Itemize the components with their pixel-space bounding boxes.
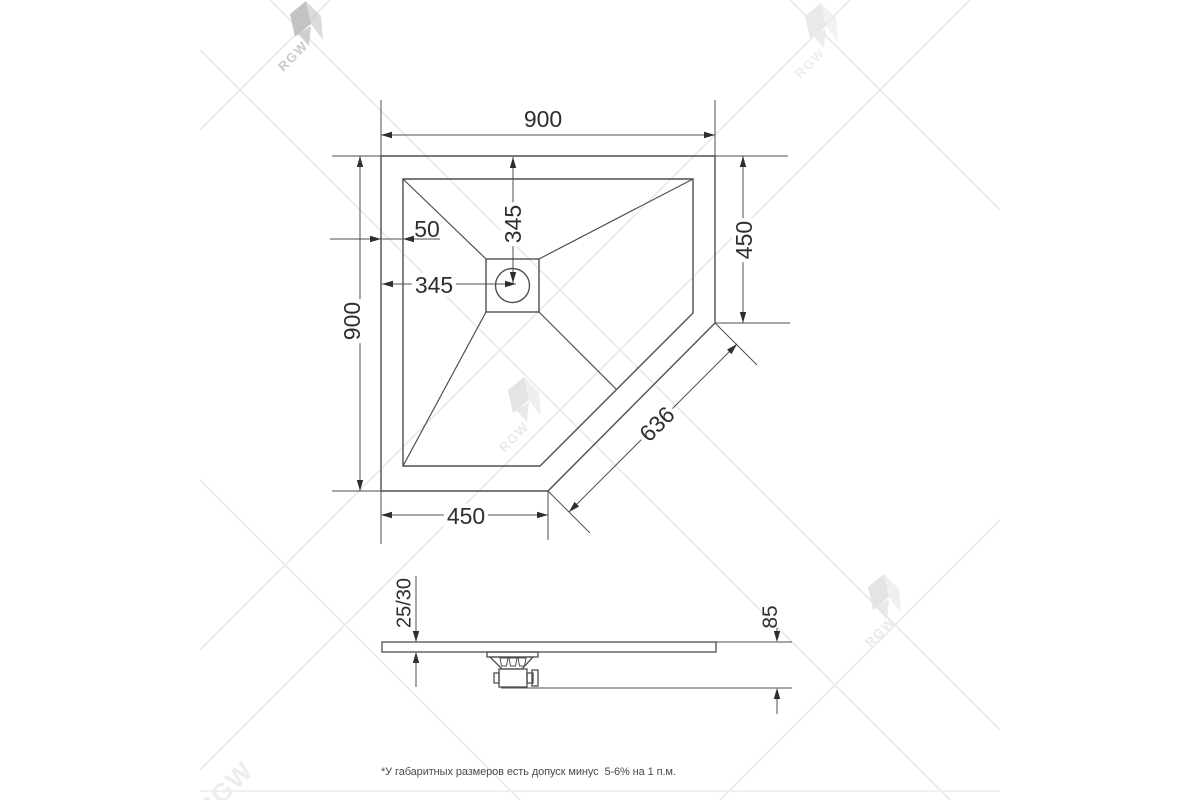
tray-profile [382,642,716,652]
plan-dimension-lines [330,100,790,544]
dim-label-drain-from-top: 345 [501,202,525,246]
dim-label-width-top: 900 [521,107,565,131]
drain-trap-left-tab [494,673,499,683]
drain-flange [487,652,538,657]
plan-view [381,156,715,491]
footnote: *У габаритных размеров есть допуск минус… [381,766,676,778]
side-view [382,642,716,687]
side-dimension-lines [416,576,792,714]
drawing-canvas: RGW RGW RGW RGW RGW [0,0,1200,800]
dim-label-thickness: 25/30 [395,578,416,628]
dim-label-drain-from-left: 345 [412,273,456,297]
dim-label-right-side: 450 [732,218,756,262]
dim-label-bottom-side: 450 [444,504,488,528]
drain-funnel-ribs [500,658,526,666]
dim-label-height-left: 900 [340,299,364,343]
drain-funnel [490,657,533,669]
dim-label-rim-offset: 50 [414,217,440,241]
dim-label-total-height: 85 [760,605,782,628]
side-arrowheads [413,631,780,699]
drain-trap-body [499,669,527,687]
technical-drawing [0,0,1200,800]
